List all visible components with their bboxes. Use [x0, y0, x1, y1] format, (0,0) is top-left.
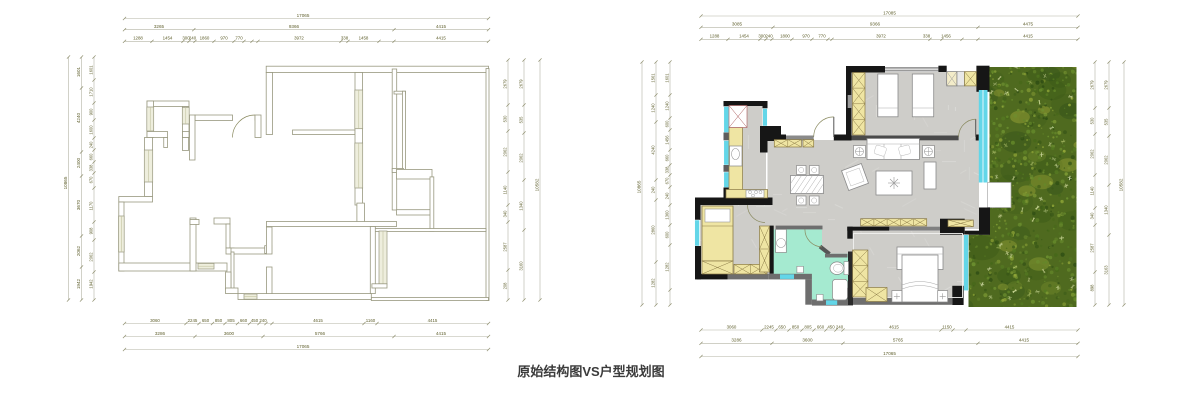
- svg-text:原始结构图VS户型规划图: 原始结构图VS户型规划图: [517, 364, 664, 379]
- svg-text:3972: 3972: [876, 34, 886, 39]
- svg-text:770: 770: [818, 34, 826, 39]
- svg-text:900: 900: [88, 108, 93, 116]
- svg-text:1561: 1561: [650, 73, 655, 83]
- svg-text:600: 600: [664, 120, 669, 128]
- svg-text:3085: 3085: [732, 22, 743, 27]
- svg-text:17065: 17065: [883, 351, 896, 356]
- svg-text:660: 660: [664, 154, 669, 162]
- svg-text:2062: 2062: [1089, 149, 1094, 159]
- svg-text:4415: 4415: [1019, 338, 1030, 343]
- svg-text:4240: 4240: [76, 112, 81, 123]
- svg-text:17065: 17065: [297, 344, 310, 349]
- svg-text:2245: 2245: [764, 324, 774, 329]
- svg-text:2245: 2245: [188, 318, 198, 323]
- svg-text:340: 340: [502, 210, 507, 218]
- svg-text:1601: 1601: [88, 65, 93, 75]
- svg-text:1601: 1601: [76, 66, 81, 77]
- svg-text:970: 970: [220, 36, 228, 41]
- svg-text:3670: 3670: [76, 199, 81, 210]
- svg-text:1340: 1340: [518, 201, 523, 211]
- svg-text:1160: 1160: [366, 318, 376, 323]
- svg-text:1710: 1710: [88, 87, 93, 97]
- svg-text:338: 338: [923, 34, 931, 39]
- svg-text:2400: 2400: [76, 157, 81, 168]
- svg-text:1458: 1458: [359, 36, 369, 41]
- svg-text:2679: 2679: [502, 79, 507, 89]
- svg-text:908: 908: [88, 227, 93, 235]
- svg-text:535: 535: [1103, 118, 1108, 126]
- svg-text:898: 898: [1089, 284, 1094, 292]
- svg-text:530: 530: [502, 115, 507, 123]
- svg-text:1282: 1282: [650, 278, 655, 288]
- svg-text:208: 208: [502, 282, 507, 290]
- svg-text:2587: 2587: [1089, 243, 1094, 253]
- svg-text:1282: 1282: [664, 262, 669, 272]
- svg-text:450: 450: [251, 318, 259, 323]
- svg-text:1288: 1288: [133, 36, 143, 41]
- svg-text:4475: 4475: [1023, 22, 1034, 27]
- svg-text:9366: 9366: [289, 24, 300, 29]
- svg-text:2062: 2062: [502, 147, 507, 157]
- svg-text:10865: 10865: [636, 180, 641, 193]
- svg-text:1800: 1800: [780, 34, 790, 39]
- svg-text:5766: 5766: [315, 331, 326, 336]
- svg-text:2062: 2062: [88, 252, 93, 262]
- svg-text:2062: 2062: [1103, 155, 1108, 165]
- svg-text:1150: 1150: [942, 324, 952, 329]
- svg-text:2679: 2679: [1089, 80, 1094, 90]
- svg-text:4240: 4240: [650, 145, 655, 155]
- svg-text:600: 600: [664, 231, 669, 239]
- svg-text:1140: 1140: [1089, 186, 1094, 196]
- svg-text:340: 340: [1089, 212, 1094, 220]
- svg-text:970: 970: [802, 34, 810, 39]
- svg-text:1456: 1456: [941, 34, 951, 39]
- svg-text:850: 850: [792, 324, 800, 329]
- svg-text:17065: 17065: [297, 13, 310, 18]
- svg-text:1360: 1360: [664, 210, 669, 220]
- svg-text:17085: 17085: [883, 10, 896, 15]
- svg-text:660: 660: [88, 153, 93, 161]
- svg-text:3286: 3286: [731, 338, 742, 343]
- svg-text:770: 770: [235, 36, 243, 41]
- svg-text:535: 535: [518, 116, 523, 124]
- svg-text:805: 805: [804, 324, 812, 329]
- svg-text:4415: 4415: [436, 24, 447, 29]
- svg-text:1454: 1454: [739, 34, 749, 39]
- svg-text:670: 670: [664, 177, 669, 185]
- svg-text:1456: 1456: [664, 135, 669, 145]
- svg-text:240: 240: [836, 324, 844, 329]
- svg-text:650: 650: [202, 318, 210, 323]
- svg-text:1288: 1288: [710, 34, 720, 39]
- svg-text:1140: 1140: [502, 185, 507, 195]
- svg-text:338: 338: [341, 36, 349, 41]
- svg-text:2062: 2062: [518, 153, 523, 163]
- svg-text:4415: 4415: [436, 36, 446, 41]
- svg-text:338: 338: [664, 166, 669, 174]
- svg-text:3600: 3600: [802, 338, 813, 343]
- svg-text:2860: 2860: [650, 225, 655, 235]
- svg-text:4415: 4415: [1005, 324, 1015, 329]
- svg-text:1600: 1600: [88, 125, 93, 135]
- svg-text:3060: 3060: [150, 318, 160, 323]
- svg-text:650: 650: [778, 324, 786, 329]
- svg-text:3265: 3265: [154, 24, 165, 29]
- svg-text:240: 240: [650, 186, 655, 194]
- svg-text:1860: 1860: [200, 36, 210, 41]
- svg-text:850: 850: [215, 318, 223, 323]
- svg-text:660: 660: [240, 318, 248, 323]
- svg-text:2679: 2679: [518, 79, 523, 89]
- svg-text:1170: 1170: [88, 201, 93, 211]
- svg-text:338: 338: [88, 164, 93, 172]
- svg-text:805: 805: [227, 318, 235, 323]
- svg-text:4415: 4415: [436, 331, 447, 336]
- svg-text:660: 660: [817, 324, 825, 329]
- svg-text:4615: 4615: [889, 324, 899, 329]
- svg-text:1340: 1340: [1103, 205, 1108, 215]
- svg-text:10582: 10582: [534, 178, 539, 191]
- svg-text:3286: 3286: [155, 331, 166, 336]
- svg-text:1240: 1240: [650, 103, 655, 113]
- svg-text:240: 240: [765, 34, 773, 39]
- svg-text:3060: 3060: [727, 324, 737, 329]
- svg-text:5765: 5765: [893, 338, 904, 343]
- svg-text:1601: 1601: [664, 73, 669, 83]
- svg-text:3972: 3972: [294, 36, 304, 41]
- svg-text:240: 240: [88, 141, 93, 149]
- svg-text:2587: 2587: [502, 242, 507, 252]
- svg-text:1454: 1454: [163, 36, 173, 41]
- svg-text:4615: 4615: [313, 318, 323, 323]
- svg-text:670: 670: [88, 176, 93, 184]
- svg-text:10865: 10865: [63, 176, 68, 189]
- svg-text:240: 240: [259, 318, 267, 323]
- svg-text:3160: 3160: [518, 261, 523, 271]
- svg-text:450: 450: [827, 324, 835, 329]
- svg-text:3163: 3163: [1103, 265, 1108, 275]
- svg-text:4415: 4415: [1023, 34, 1033, 39]
- svg-text:240: 240: [189, 36, 197, 41]
- svg-text:2062: 2062: [76, 245, 81, 256]
- svg-text:4415: 4415: [428, 318, 438, 323]
- svg-text:2679: 2679: [1103, 80, 1108, 90]
- svg-text:1942: 1942: [76, 278, 81, 289]
- svg-text:3600: 3600: [224, 331, 235, 336]
- svg-text:240: 240: [664, 192, 669, 200]
- svg-text:10582: 10582: [1118, 178, 1123, 191]
- svg-text:530: 530: [1089, 117, 1094, 125]
- svg-text:1240: 1240: [664, 101, 669, 111]
- svg-text:1942: 1942: [88, 279, 93, 289]
- svg-text:9366: 9366: [870, 22, 881, 27]
